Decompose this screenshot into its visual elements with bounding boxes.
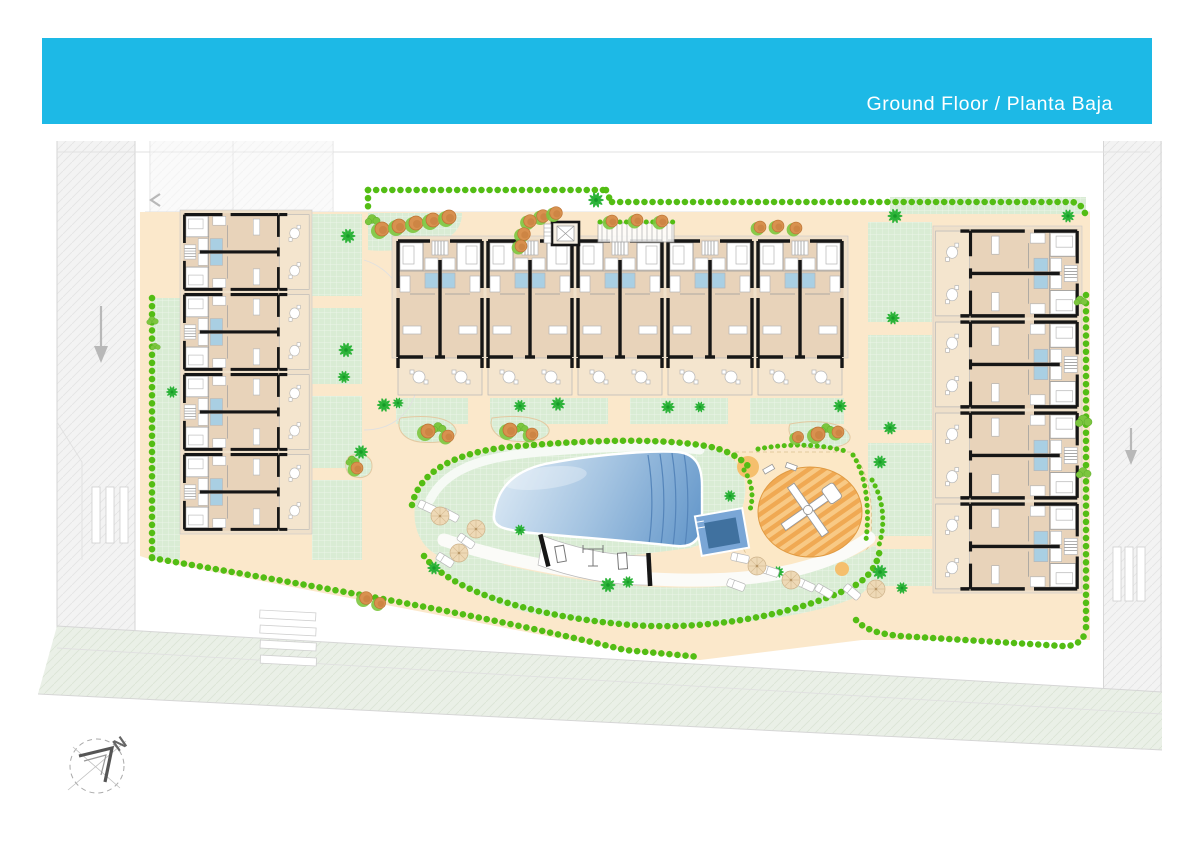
palm-tree <box>588 192 604 208</box>
crosswalk-bottom <box>257 610 319 666</box>
parasol <box>450 544 468 562</box>
apartment-module <box>397 240 484 396</box>
apartment-module <box>183 453 309 530</box>
lawn-west-of-left-building <box>152 298 180 560</box>
north-compass: N <box>68 733 130 793</box>
parasol <box>467 520 485 538</box>
left-road <box>57 141 135 653</box>
elevator-core <box>544 222 579 245</box>
apartment-module <box>936 321 1079 409</box>
center-building <box>397 240 844 396</box>
lawn-west-of-right-building <box>868 222 932 586</box>
site-plan: N Ground Floor / Planta Baja <box>0 0 1200 848</box>
apartment-module <box>183 293 309 370</box>
parasol <box>782 571 800 589</box>
apartment-module <box>667 240 754 396</box>
crosswalk-left <box>92 487 128 543</box>
driveway <box>150 141 333 212</box>
apartment-module <box>183 213 309 290</box>
lawn-strip <box>630 398 728 424</box>
apartment-module <box>577 240 664 396</box>
parasol <box>867 580 885 598</box>
kids-pool <box>695 508 749 556</box>
right-road <box>1103 141 1162 701</box>
parasol <box>748 557 766 575</box>
title-banner: Ground Floor / Planta Baja <box>42 38 1152 124</box>
apartment-module <box>936 412 1079 500</box>
apartment-module <box>936 230 1079 318</box>
apartment-module <box>183 373 309 450</box>
plan-title: Ground Floor / Planta Baja <box>867 93 1113 115</box>
sand-circle <box>835 562 849 576</box>
apartment-module <box>487 240 574 396</box>
page: N Ground Floor / Planta Baja <box>0 0 1200 848</box>
apartment-module <box>757 240 844 396</box>
parasol <box>431 507 449 525</box>
crosswalk-right <box>1113 547 1145 601</box>
apartment-module <box>936 503 1079 591</box>
lawn-strip <box>750 398 844 424</box>
